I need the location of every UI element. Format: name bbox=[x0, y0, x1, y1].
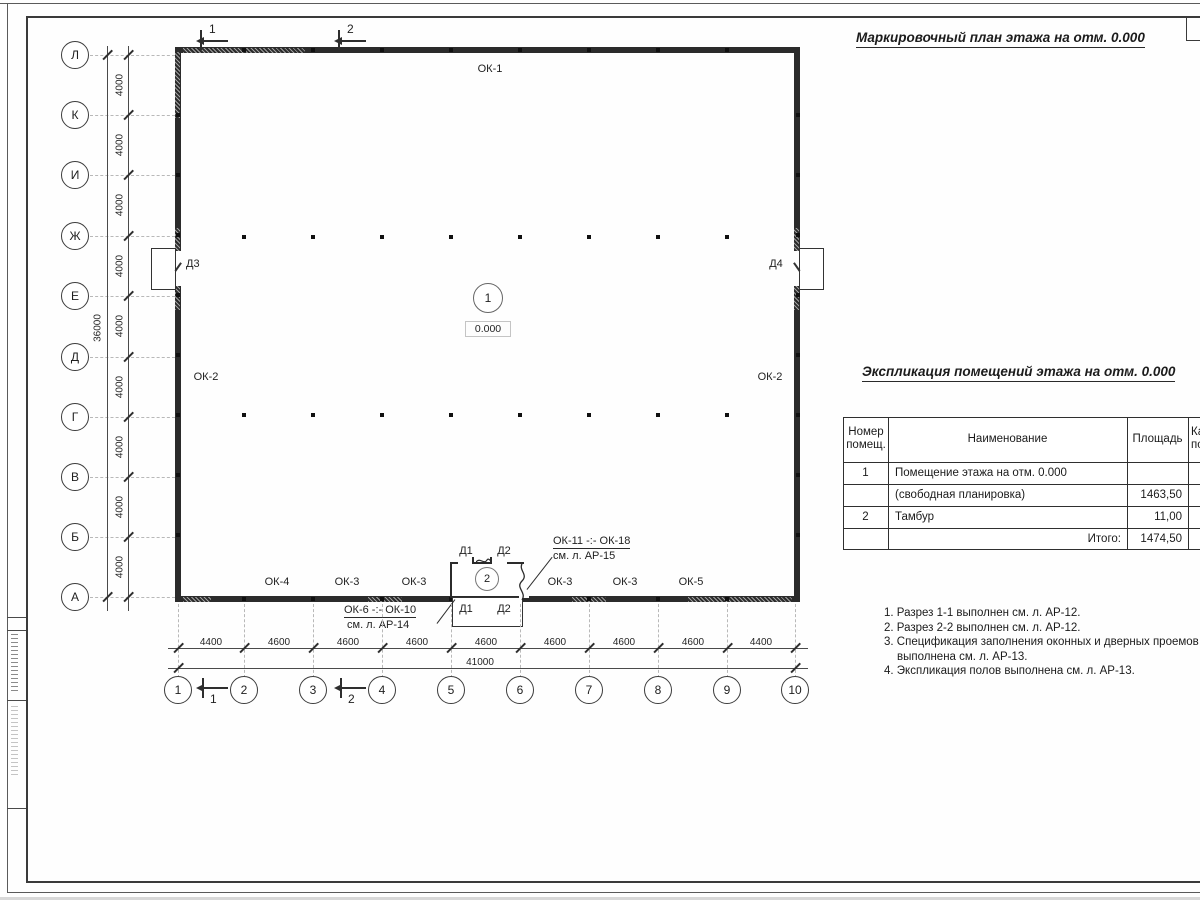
door-porch-d3 bbox=[151, 248, 176, 290]
window-label-ok2-right: ОК-2 bbox=[750, 371, 790, 383]
hdim-label-8: 4400 bbox=[750, 637, 772, 648]
hdim-label-4: 4600 bbox=[475, 637, 497, 648]
axis-col-label: 2 bbox=[241, 683, 248, 697]
tambour-break-right bbox=[514, 562, 530, 600]
axis-line-row-3 bbox=[90, 236, 175, 237]
axis-line-col-2 bbox=[313, 604, 314, 678]
table-cell-name: Помещение этажа на отм. 0.000 bbox=[895, 467, 1067, 480]
section1-top-number: 1 bbox=[209, 22, 216, 36]
axis-col-circle-9: 10 bbox=[781, 676, 809, 704]
table-cell-total-area: 1474,50 bbox=[1127, 533, 1182, 546]
vdim-label-7: 4000 bbox=[115, 496, 126, 518]
axis-row-circle-7: В bbox=[61, 463, 89, 491]
axis-col-circle-5: 6 bbox=[506, 676, 534, 704]
vdim-label-0: 4000 bbox=[115, 74, 126, 96]
vdim-total-label: 36000 bbox=[93, 314, 104, 342]
axis-line-col-6 bbox=[589, 604, 590, 678]
axis-col-circle-8: 9 bbox=[713, 676, 741, 704]
window-label-ok4: ОК-4 bbox=[257, 576, 297, 588]
frame-main-left bbox=[26, 16, 28, 882]
axis-row-label: В bbox=[71, 470, 79, 484]
room1-level-box: 0.000 bbox=[465, 321, 511, 337]
frame-main-bottom bbox=[26, 881, 1200, 883]
axis-line-row-9 bbox=[90, 597, 175, 598]
hdim-total-label: 41000 bbox=[466, 657, 494, 668]
axis-row-label: И bbox=[71, 168, 80, 182]
stamp-divider-3 bbox=[7, 700, 26, 701]
note-item: 3. Спецификация заполнения оконных и две… bbox=[884, 635, 1200, 664]
table-header-cut: Ка по bbox=[1191, 426, 1200, 451]
table-header-area: Площадь bbox=[1128, 433, 1187, 446]
note-item: 1. Разрез 1-1 выполнен см. л. АР-12. bbox=[884, 606, 1200, 621]
section2-bottom-number: 2 bbox=[348, 692, 355, 706]
section1-bottom-line bbox=[203, 687, 228, 689]
hdim-chain-line bbox=[168, 648, 808, 649]
axis-col-circle-1: 2 bbox=[230, 676, 258, 704]
axis-line-row-8 bbox=[90, 537, 175, 538]
axis-row-label: Л bbox=[71, 48, 79, 62]
vdim-chain-line bbox=[128, 46, 129, 611]
vdim-total-line bbox=[107, 46, 108, 611]
window-label-ok3-a: ОК-3 bbox=[327, 576, 367, 588]
table-cell-num: 1 bbox=[843, 467, 888, 480]
wall-hatch bbox=[175, 52, 180, 118]
notes-list: 1. Разрез 1-1 выполнен см. л. АР-12. 2. … bbox=[884, 606, 1200, 679]
hdim-label-7: 4600 bbox=[682, 637, 704, 648]
table-hline bbox=[843, 484, 1200, 485]
door-label-d4: Д4 bbox=[764, 258, 788, 270]
axis-line-col-1 bbox=[244, 604, 245, 678]
axis-line-row-7 bbox=[90, 477, 175, 478]
vdim-label-1: 4000 bbox=[115, 134, 126, 156]
axis-row-circle-5: Д bbox=[61, 343, 89, 371]
leader-right-line1: ОК-11 -:- ОК-18 bbox=[553, 535, 630, 549]
room1-circle: 1 bbox=[473, 283, 503, 313]
hdim-label-3: 4600 bbox=[406, 637, 428, 648]
window-label-ok3-b: ОК-3 bbox=[394, 576, 434, 588]
table-hline bbox=[843, 462, 1200, 463]
axis-row-label: Д bbox=[71, 350, 79, 364]
window-label-ok2-left: ОК-2 bbox=[186, 371, 226, 383]
axis-col-label: 6 bbox=[517, 683, 524, 697]
corner-notch-v bbox=[1186, 16, 1187, 40]
axis-row-circle-2: И bbox=[61, 161, 89, 189]
axis-row-circle-0: Л bbox=[61, 41, 89, 69]
table-cell-name: Тамбур bbox=[895, 511, 934, 524]
axis-col-label: 10 bbox=[788, 683, 801, 697]
note-item: 2. Разрез 2-2 выполнен см. л. АР-12. bbox=[884, 621, 1200, 636]
window-label-ok3-c: ОК-3 bbox=[540, 576, 580, 588]
frame-outer-left bbox=[7, 3, 8, 893]
axis-row-label: А bbox=[71, 590, 79, 604]
table-cell-area: 11,00 bbox=[1127, 511, 1182, 524]
tambour-gap-d1 bbox=[458, 560, 473, 566]
stamp-divider-2 bbox=[7, 630, 26, 631]
axis-row-label: К bbox=[72, 108, 79, 122]
leader-left-text1: ОК-6 -:- ОК-10 bbox=[344, 604, 416, 616]
axis-line-col-7 bbox=[658, 604, 659, 678]
section2-bottom-line bbox=[341, 687, 366, 689]
axis-line-col-3 bbox=[382, 604, 383, 678]
axis-row-circle-6: Г bbox=[61, 403, 89, 431]
table-cell-name: (свободная планировка) bbox=[895, 489, 1025, 502]
axis-col-label: 4 bbox=[379, 683, 386, 697]
table-cell-area: 1463,50 bbox=[1127, 489, 1182, 502]
axis-col-label: 7 bbox=[586, 683, 593, 697]
section1-top-line bbox=[203, 40, 228, 42]
axis-line-row-0 bbox=[90, 55, 175, 56]
corner-notch-h bbox=[1186, 40, 1200, 41]
axis-col-label: 3 bbox=[310, 683, 317, 697]
tambour-label-d1-top: Д1 bbox=[456, 545, 476, 557]
axis-row-circle-1: К bbox=[61, 101, 89, 129]
door-porch-d4 bbox=[799, 248, 824, 290]
column-dots-row-zh bbox=[242, 235, 731, 239]
stamp-microtext-2 bbox=[11, 706, 18, 776]
stamp-divider-1 bbox=[7, 617, 26, 618]
room2-number: 2 bbox=[484, 573, 490, 585]
door-label-d3: Д3 bbox=[186, 258, 200, 270]
tambour-label-d2-bottom: Д2 bbox=[494, 603, 514, 615]
leader-left-text2: см. л. АР-14 bbox=[347, 619, 409, 631]
axis-col-circle-3: 4 bbox=[368, 676, 396, 704]
axis-row-label: Ж bbox=[69, 229, 80, 243]
tambour-door-stub bbox=[472, 557, 474, 564]
tambour-label-d1-bottom: Д1 bbox=[456, 603, 476, 615]
table-hline bbox=[843, 528, 1200, 529]
table-header-num: Номер помещ. bbox=[845, 426, 887, 451]
column-dots-top-wall bbox=[242, 48, 731, 52]
axis-line-row-4 bbox=[90, 296, 175, 297]
axis-row-label: Г bbox=[72, 410, 79, 424]
table-hline bbox=[843, 506, 1200, 507]
axis-col-label: 9 bbox=[724, 683, 731, 697]
room2-circle: 2 bbox=[475, 567, 499, 591]
vdim-label-3: 4000 bbox=[115, 255, 126, 277]
table-title: Экспликация помещений этажа на отм. 0.00… bbox=[862, 364, 1175, 382]
room1-level: 0.000 bbox=[475, 323, 501, 335]
axis-col-label: 5 bbox=[448, 683, 455, 697]
table-cell-total-label: Итого: bbox=[888, 533, 1121, 546]
tambour-gap-d2 bbox=[492, 560, 507, 566]
axis-col-label: 8 bbox=[655, 683, 662, 697]
wall-hatch bbox=[183, 597, 211, 602]
window-label-ok3-d: ОК-3 bbox=[605, 576, 645, 588]
hdim-label-2: 4600 bbox=[337, 637, 359, 648]
leader-left-line1: ОК-6 -:- ОК-10 bbox=[344, 604, 416, 618]
table-cell-num: 2 bbox=[843, 511, 888, 524]
axis-row-circle-9: А bbox=[61, 583, 89, 611]
hdim-label-0: 4400 bbox=[200, 637, 222, 648]
axis-line-col-8 bbox=[727, 604, 728, 678]
axis-col-circle-0: 1 bbox=[164, 676, 192, 704]
vdim-label-5: 4000 bbox=[115, 376, 126, 398]
axis-line-row-5 bbox=[90, 357, 175, 358]
frame-main-top bbox=[26, 16, 1200, 18]
axis-line-row-6 bbox=[90, 417, 175, 418]
hdim-label-1: 4600 bbox=[268, 637, 290, 648]
axis-row-label: Б bbox=[71, 530, 79, 544]
window-label-ok5: ОК-5 bbox=[671, 576, 711, 588]
axis-col-circle-7: 8 bbox=[644, 676, 672, 704]
axis-line-row-2 bbox=[90, 175, 175, 176]
axis-col-circle-2: 3 bbox=[299, 676, 327, 704]
vdim-label-2: 4000 bbox=[115, 194, 126, 216]
table-header-name: Наименование bbox=[890, 433, 1125, 446]
axis-line-col-5 bbox=[520, 604, 521, 678]
hdim-total-line bbox=[168, 668, 808, 669]
section2-top-line bbox=[341, 40, 366, 42]
axis-col-circle-6: 7 bbox=[575, 676, 603, 704]
vdim-label-8: 4000 bbox=[115, 556, 126, 578]
column-dots-right-wall bbox=[796, 113, 800, 541]
window-label-ok1: ОК-1 bbox=[470, 63, 510, 75]
stamp-divider-4 bbox=[7, 808, 26, 809]
axis-line-col-4 bbox=[451, 604, 452, 678]
tambour-break-top bbox=[476, 556, 492, 566]
plan-title: Маркировочный план этажа на отм. 0.000 bbox=[856, 30, 1145, 48]
axis-col-label: 1 bbox=[175, 683, 182, 697]
section1-bottom-number: 1 bbox=[210, 692, 217, 706]
leader-right-text2: см. л. АР-15 bbox=[553, 550, 615, 562]
hdim-label-6: 4600 bbox=[613, 637, 635, 648]
axis-row-circle-4: Е bbox=[61, 282, 89, 310]
hdim-label-5: 4600 bbox=[544, 637, 566, 648]
stamp-microtext-1 bbox=[11, 634, 18, 694]
axis-line-row-1 bbox=[90, 115, 175, 116]
frame-outer-top bbox=[0, 3, 1200, 4]
tambour-label-d2-top: Д2 bbox=[494, 545, 514, 557]
axis-col-circle-4: 5 bbox=[437, 676, 465, 704]
section2-top-number: 2 bbox=[347, 22, 354, 36]
room1-number: 1 bbox=[485, 291, 492, 305]
axis-row-label: Е bbox=[71, 289, 79, 303]
note-item: 4. Экспликация полов выполнена см. л. АР… bbox=[884, 664, 1200, 679]
vdim-label-6: 4000 bbox=[115, 436, 126, 458]
frame-outer-bottom bbox=[7, 892, 1200, 893]
drawing-sheet: Маркировочный план этажа на отм. 0.000 Э… bbox=[0, 0, 1200, 900]
leader-right-text1: ОК-11 -:- ОК-18 bbox=[553, 535, 630, 547]
vdim-label-4: 4000 bbox=[115, 315, 126, 337]
axis-row-circle-8: Б bbox=[61, 523, 89, 551]
axis-row-circle-3: Ж bbox=[61, 222, 89, 250]
column-dots-left-wall bbox=[176, 113, 180, 541]
column-dots-row-g bbox=[242, 413, 731, 417]
